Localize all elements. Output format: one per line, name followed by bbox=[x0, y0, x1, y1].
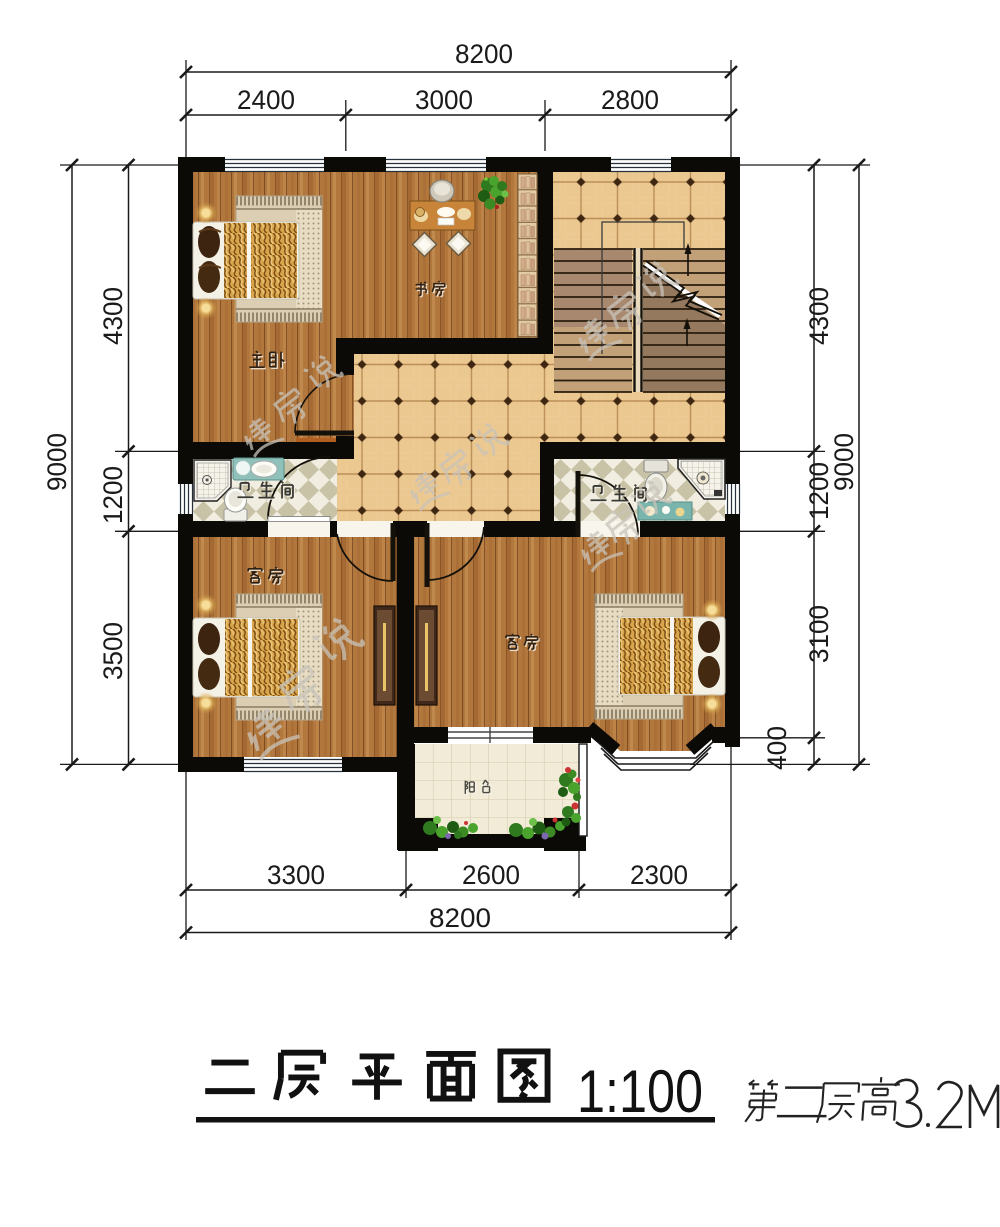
svg-text:1200: 1200 bbox=[804, 462, 834, 520]
svg-text:400: 400 bbox=[762, 726, 792, 770]
svg-text:2600: 2600 bbox=[462, 860, 520, 890]
svg-text:8200: 8200 bbox=[429, 903, 491, 933]
svg-text:1:100: 1:100 bbox=[577, 1058, 703, 1125]
svg-text:8200: 8200 bbox=[455, 39, 513, 69]
svg-text:3100: 3100 bbox=[804, 605, 834, 663]
svg-text:1200: 1200 bbox=[98, 466, 128, 524]
svg-text:2400: 2400 bbox=[237, 85, 295, 115]
svg-text:9000: 9000 bbox=[42, 433, 72, 491]
svg-text:2300: 2300 bbox=[630, 860, 688, 890]
svg-text:3300: 3300 bbox=[267, 860, 325, 890]
svg-text:4300: 4300 bbox=[98, 287, 128, 345]
svg-text:2800: 2800 bbox=[601, 85, 659, 115]
svg-text:4300: 4300 bbox=[804, 287, 834, 345]
svg-text:3500: 3500 bbox=[98, 622, 128, 680]
svg-text:3000: 3000 bbox=[415, 85, 473, 115]
